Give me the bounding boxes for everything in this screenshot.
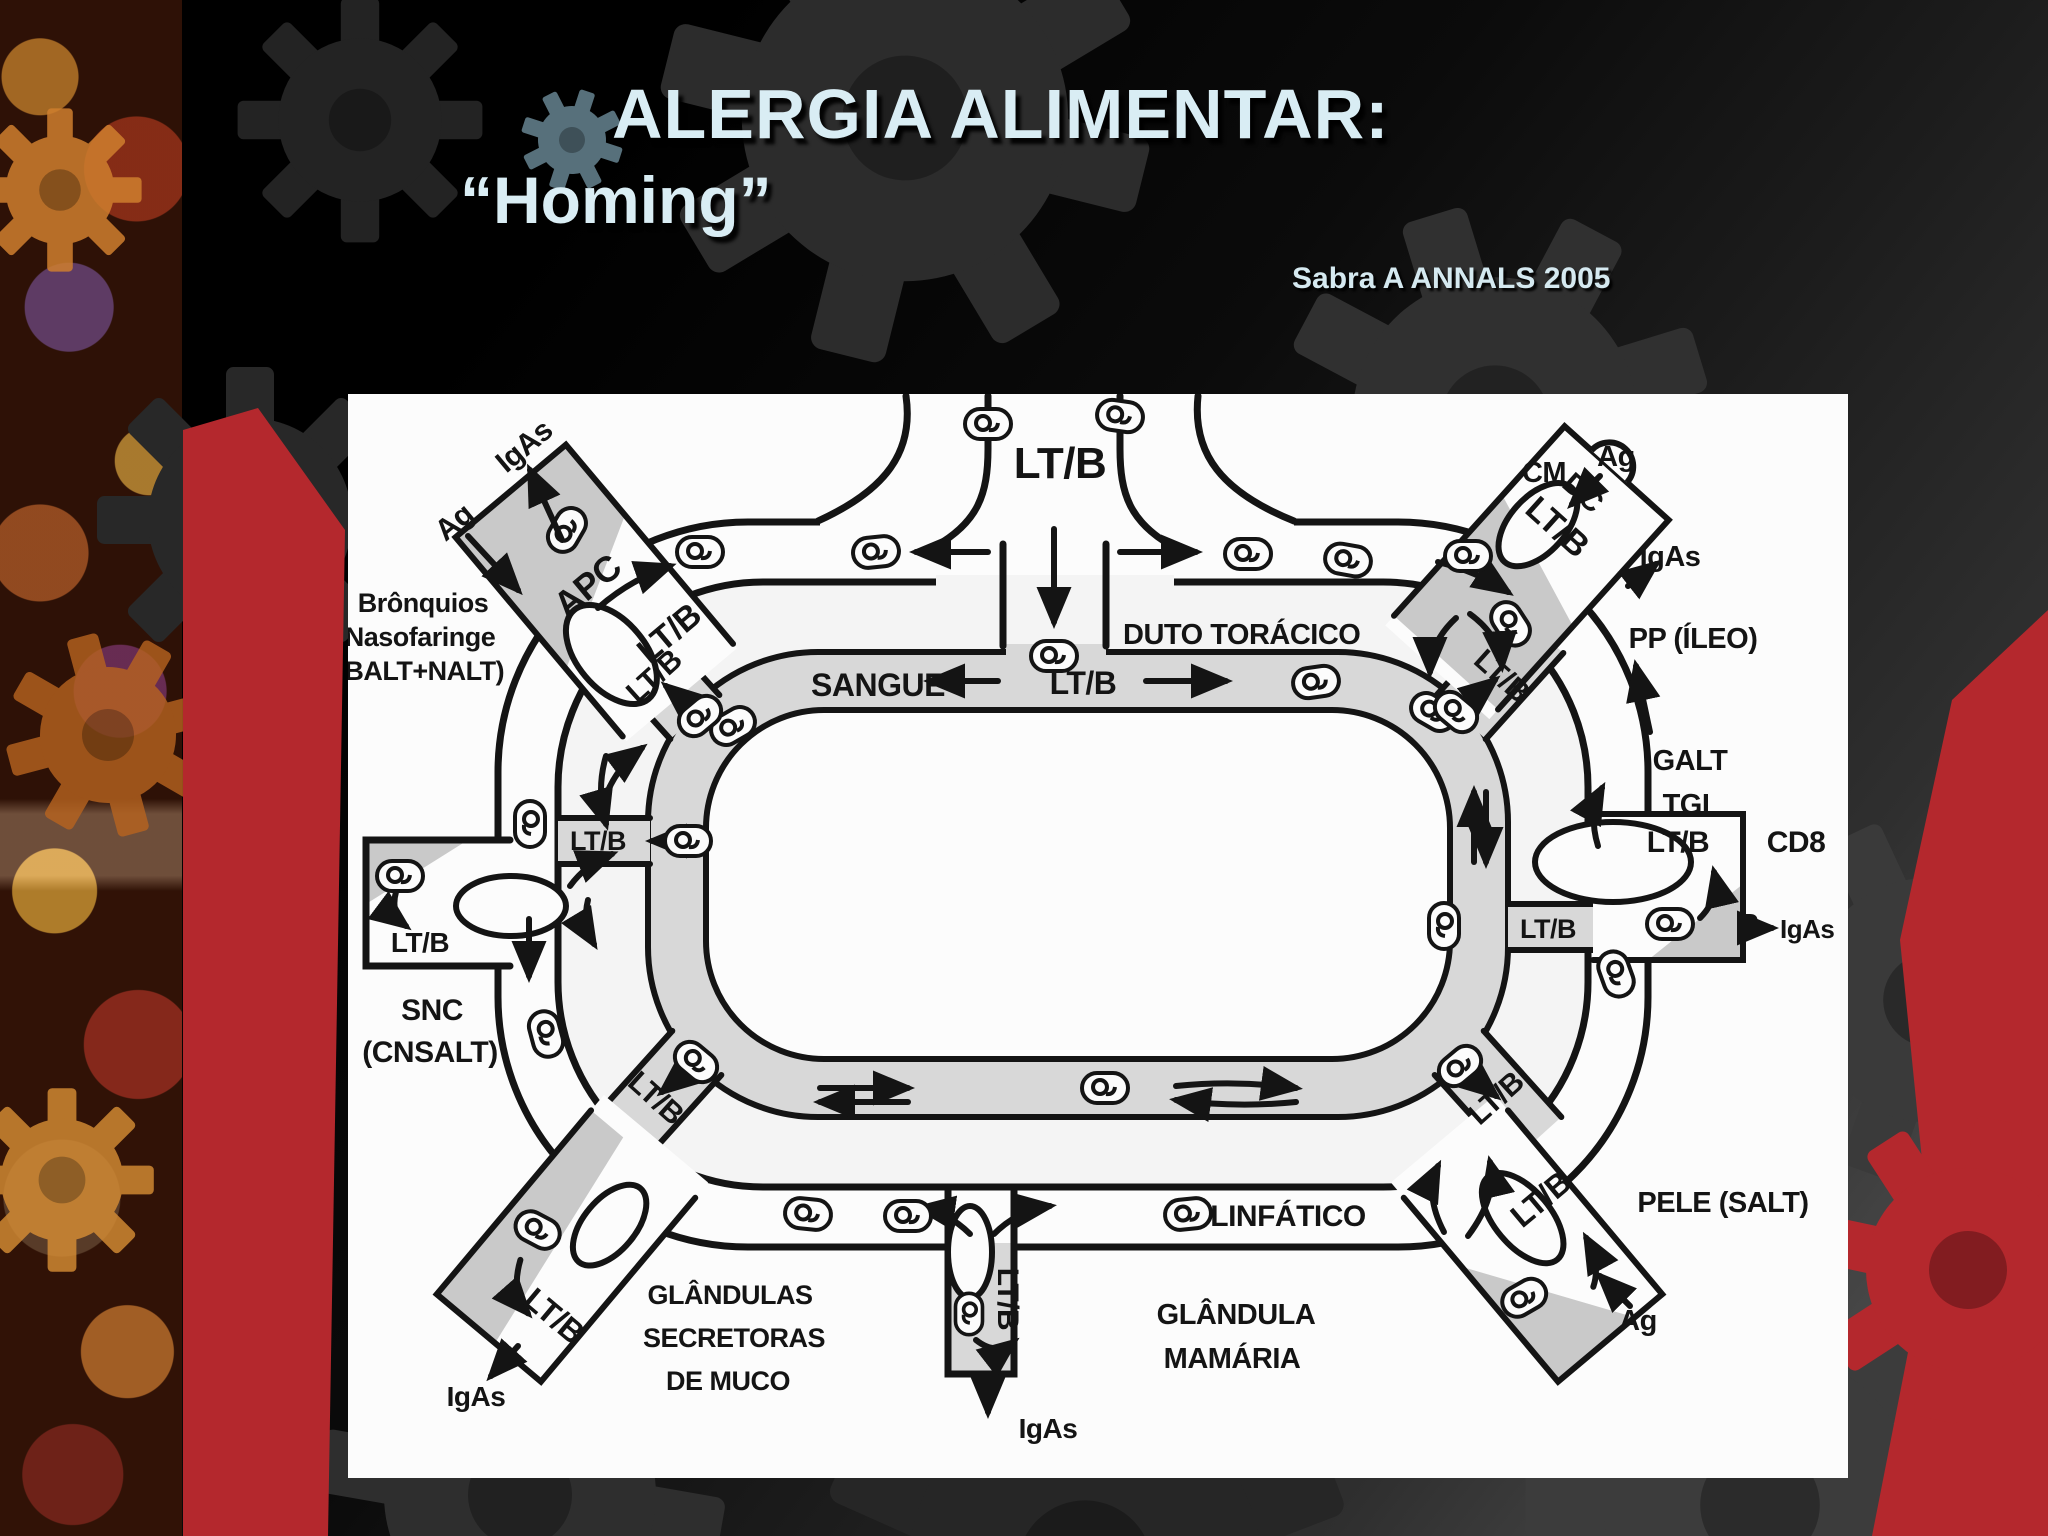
label-ltb-top-branch: LT/B (1014, 439, 1107, 488)
label-ltb-left-connector: LT/B (570, 826, 626, 856)
gear-icon (238, 0, 483, 242)
label-mamaria-line2: MAMÁRIA (1164, 1341, 1301, 1375)
label-bronquios-line3: (BALT+NALT) (348, 656, 504, 686)
homing-diagram-panel: APC LT/B Ag IgAs Brônquios Nasofaringe (… (348, 394, 1848, 1478)
label-ltb-cd8-box: LT/B (1647, 826, 1709, 859)
label-igas-mammary: IgAs (1019, 1413, 1078, 1444)
ring-opening (820, 514, 1294, 531)
slide-citation: Sabra A ANNALS 2005 (1292, 262, 1610, 296)
label-pele: PELE (SALT) (1637, 1187, 1808, 1219)
label-snc-line2: (CNSALT) (362, 1036, 497, 1069)
label-glandulas-line3: DE MUCO (666, 1366, 790, 1396)
orange-gear-icon (0, 108, 142, 271)
label-igas-pp: IgAs (1640, 541, 1701, 573)
label-bronquios-line2: Nasofaringe (348, 622, 496, 652)
label-ltb-mammary-branch: LT/B (991, 1268, 1024, 1330)
label-sangue: SANGUE (811, 667, 945, 703)
slide: { "slide": { "title_line1": "ALERGIA ALI… (0, 0, 2048, 1536)
label-duto-toracico: DUTO TORÁCICO (1123, 617, 1360, 651)
label-pp-ileo: PP (ÍLEO) (1629, 621, 1758, 655)
label-igas-cd8: IgAs (1780, 914, 1834, 944)
blood-ring (648, 652, 1508, 1117)
label-linfatico: LINFÁTICO (1210, 1199, 1366, 1233)
slide-title-line2: “Homing” (460, 162, 772, 238)
orange-gear-icon (0, 1088, 154, 1272)
label-mamaria-line1: GLÂNDULA (1157, 1297, 1316, 1331)
label-ag-pp: Ag (1597, 441, 1635, 473)
label-igas-mucus: IgAs (447, 1381, 506, 1412)
label-glandulas-line2: SECRETORAS (643, 1323, 825, 1353)
label-ltb-right-connector: LT/B (1520, 914, 1576, 944)
label-galt: GALT (1653, 745, 1729, 777)
label-cd8: CD8 (1767, 826, 1826, 859)
label-glandulas-line1: GLÂNDULAS (648, 1279, 813, 1310)
label-ag-pele: Ag (1619, 1305, 1657, 1337)
homing-diagram: APC LT/B Ag IgAs Brônquios Nasofaringe (… (348, 394, 1848, 1478)
label-cm: CM (1522, 457, 1566, 489)
label-snc-line1: SNC (401, 994, 463, 1027)
slide-title-line1: ALERGIA ALIMENTAR: (612, 74, 1390, 154)
label-ltb-snc-box: LT/B (391, 927, 449, 958)
red-ribbon-left (183, 408, 345, 1536)
label-bronquios-line1: Brônquios (358, 588, 489, 618)
